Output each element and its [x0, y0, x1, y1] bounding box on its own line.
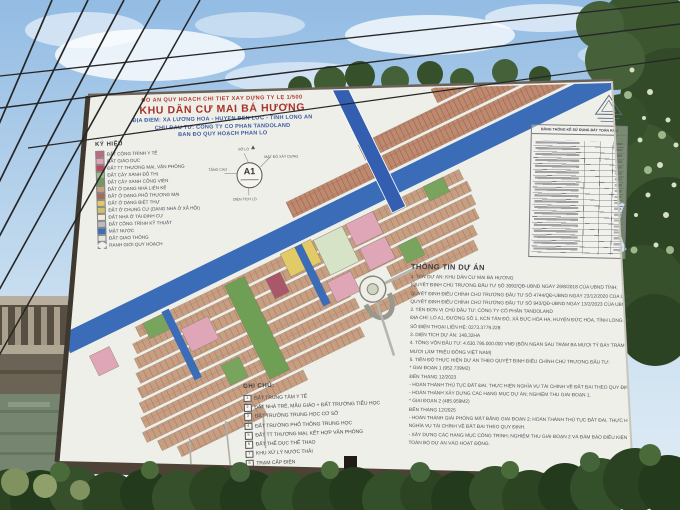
- parcel-key-top-label: SỐ LÔ: [238, 147, 249, 151]
- note-number-box: 1: [243, 395, 251, 403]
- legend-item-label: RANH GIỚI QUY HOẠCH: [109, 241, 162, 247]
- note-number-box: 4: [244, 422, 252, 430]
- note-number-box: 3: [244, 413, 252, 421]
- legend-color-chip: [95, 158, 104, 164]
- legend-color-chip: [96, 165, 105, 171]
- billboard-photo-scene: ĐỒ ÁN QUY HOẠCH CHI TIẾT XÂY DỰNG TỶ LỆ …: [0, 0, 680, 510]
- note-number-box: 2: [244, 404, 252, 412]
- parcel-key: SỐ LÔ TẦNG CAO MẬT ĐỘ XÂY DỰNG DIỆN TÍCH…: [208, 144, 295, 205]
- note-number-box: 8: [246, 460, 254, 468]
- legend-color-chip: [97, 228, 106, 234]
- legend-color-chip: [97, 221, 106, 227]
- note-number-box: 5: [245, 432, 253, 440]
- legend-color-chip: [96, 186, 105, 192]
- legend-color-chip: [97, 235, 106, 241]
- legend-item-label: ĐẤT GIÁO DỤC: [107, 158, 140, 164]
- parcel-key-right-label: MẬT ĐỘ XÂY DỰNG: [264, 154, 298, 159]
- legend-color-chip: [97, 207, 106, 213]
- legend-color-chip: [97, 214, 106, 220]
- parcel-key-code: A1: [237, 163, 261, 179]
- legend-color-chip: [95, 151, 104, 157]
- note-label: ĐẤT THỂ DỤC THỂ THAO: [256, 440, 316, 448]
- parcel-key-bottom-label: DIỆN TÍCH LÔ: [233, 197, 257, 201]
- note-label: TRẠM CẤP ĐIỆN: [256, 459, 295, 466]
- legend-color-chip: [96, 193, 105, 199]
- note-number-box: 7: [245, 450, 253, 458]
- parcel-key-left-label: TẦNG CAO: [208, 168, 227, 172]
- legend-item-label: ĐẤT GIAO THÔNG: [109, 235, 149, 241]
- map-notes: GHI CHÚ: 1 ĐẤT TRUNG TÂM Y TẾ 2 ĐẤT NHÀ …: [243, 377, 414, 468]
- landuse-stats-table: BẢNG THỐNG KÊ SỬ DỤNG ĐẤT TOÀN KHU: [528, 124, 628, 259]
- project-info-lines: 1. TÊN DỰ ÁN: KHU DÂN CƯ MAI BÁ HƯƠNG (Q…: [408, 274, 629, 451]
- project-logo: [587, 92, 630, 127]
- school-block-pink: [89, 346, 118, 375]
- legend-color-chip: [98, 242, 107, 248]
- note-label: ĐẤT TRUNG TÂM Y TẾ: [254, 393, 307, 401]
- map-legend: KÝ HIỆU ĐẤT CÔNG TRÌNH Y TẾ ĐẤT GIÁO DỤC: [95, 139, 224, 249]
- legend-color-chip: [97, 200, 106, 206]
- project-info: THÔNG TIN DỰ ÁN 1. TÊN DỰ ÁN: KHU DÂN CƯ…: [408, 262, 630, 451]
- project-info-title: THÔNG TIN DỰ ÁN: [411, 262, 630, 274]
- note-label: KHU XỬ LÝ NƯỚC THẢI: [256, 449, 313, 457]
- legend-list: ĐẤT CÔNG TRÌNH Y TẾ ĐẤT GIÁO DỤC ĐẤT TT …: [95, 148, 224, 249]
- bridge-railing: [0, 296, 70, 396]
- legend-color-chip: [96, 179, 105, 185]
- legend-item-label: MẶT NƯỚC: [109, 228, 135, 234]
- board-header: ĐỒ ÁN QUY HOẠCH CHI TIẾT XÂY DỰNG TỶ LỆ …: [88, 93, 357, 141]
- stats-table-title: BẢNG THỐNG KÊ SỬ DỤNG ĐẤT TOÀN KHU: [532, 125, 627, 136]
- legend-color-chip: [96, 172, 105, 178]
- stats-table-row-text: [533, 141, 579, 253]
- notes-list: 1 ĐẤT TRUNG TÂM Y TẾ 2 ĐẤT NHÀ TRẺ, MẪU …: [243, 388, 413, 468]
- note-number-box: 6: [245, 441, 253, 449]
